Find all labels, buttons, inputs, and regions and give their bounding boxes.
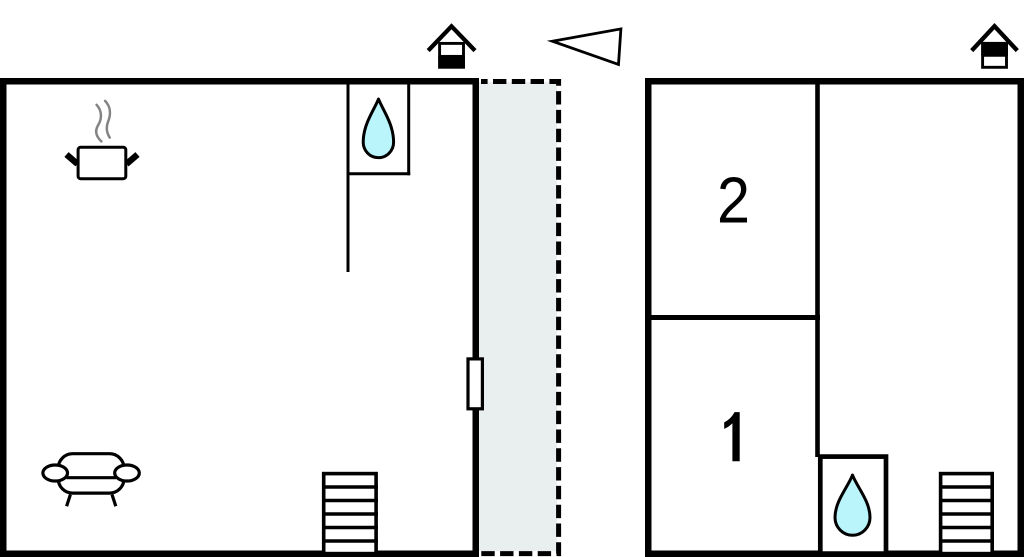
svg-text:2: 2 xyxy=(717,164,750,237)
